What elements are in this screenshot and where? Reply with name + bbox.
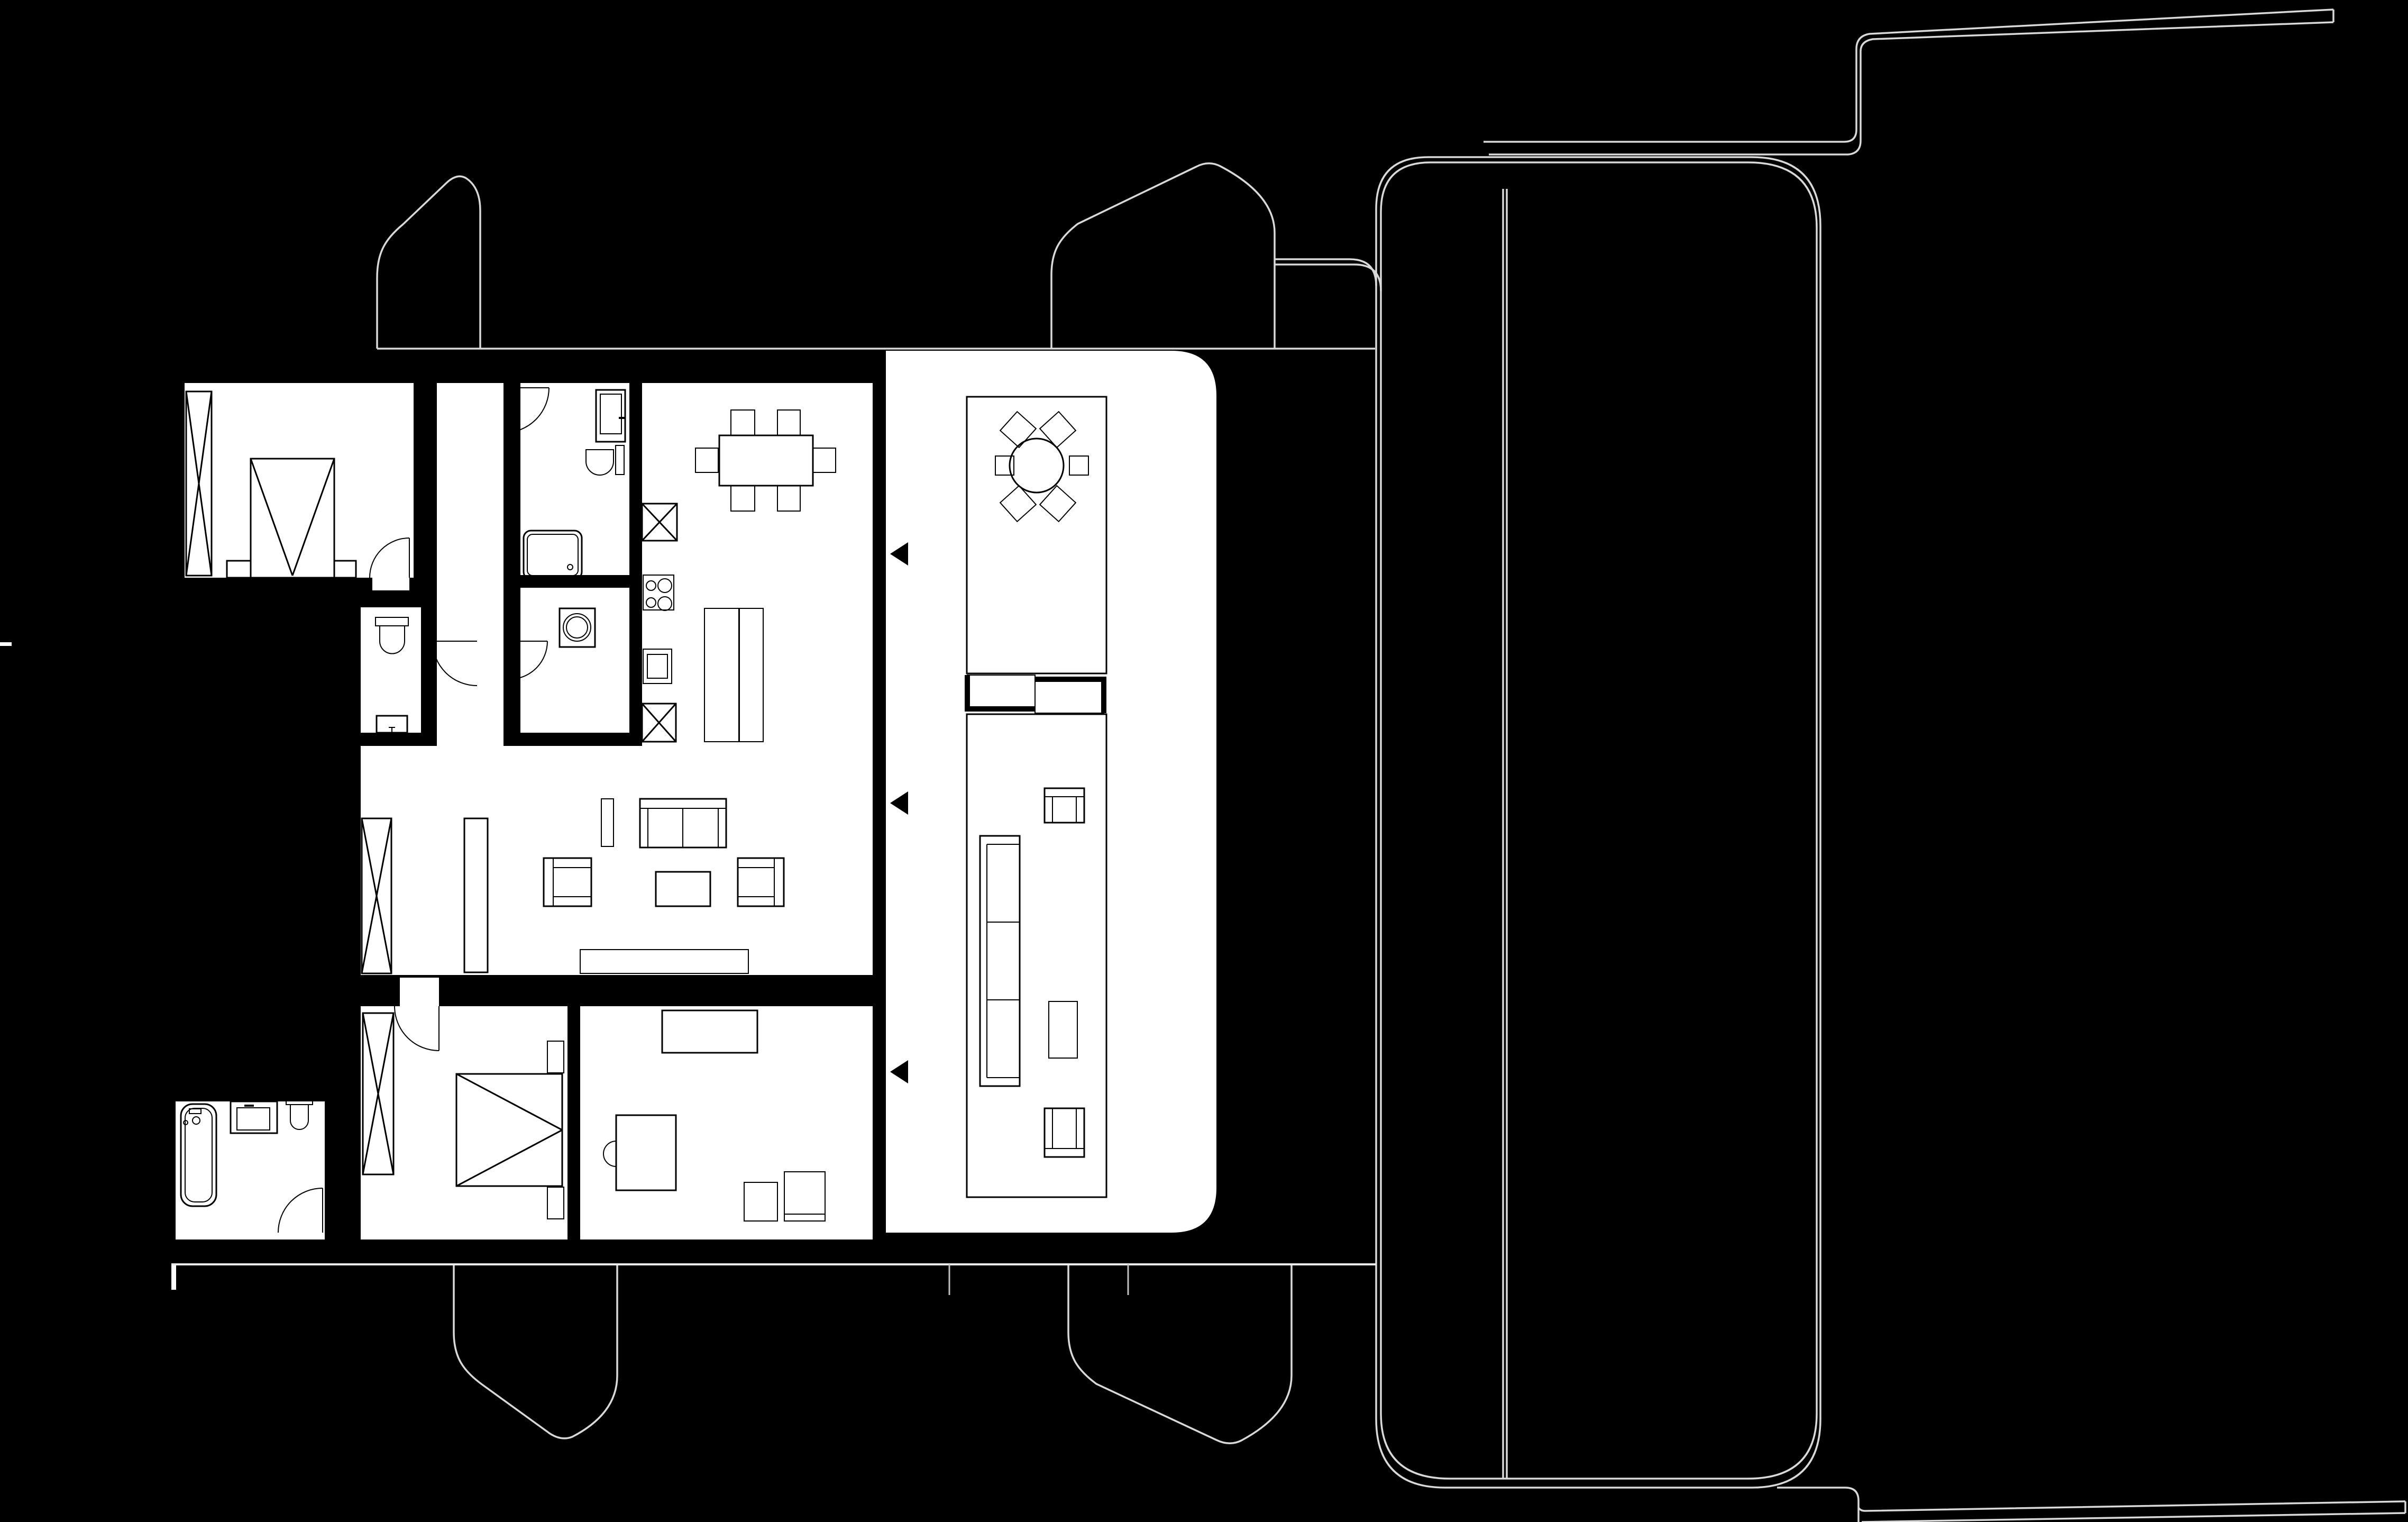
room-utility bbox=[520, 588, 629, 733]
path-bottom-right-2 bbox=[1862, 1513, 2405, 1522]
plate-east-outer bbox=[1376, 157, 1820, 1488]
floor-plan-drawing bbox=[0, 0, 2408, 1522]
floor-plan-canvas bbox=[0, 0, 2408, 1522]
plate-east-inner bbox=[1381, 162, 1817, 1479]
terrace-slab bbox=[886, 351, 1216, 1233]
plate-mid-branch-outer bbox=[1275, 259, 1376, 286]
room-living bbox=[361, 746, 873, 975]
path-top-inner bbox=[1489, 22, 2333, 154]
room-bedroom-1 bbox=[185, 383, 414, 578]
path-top-outer bbox=[1484, 10, 2333, 142]
plate-bottom-bump-2 bbox=[1068, 1264, 1292, 1443]
room-study bbox=[580, 1006, 873, 1240]
path-bottom-outer bbox=[1777, 1488, 1858, 1522]
room-bath-2 bbox=[176, 1101, 325, 1240]
door-gap-bedroom2 bbox=[400, 978, 439, 1006]
left-edge-tick bbox=[0, 642, 12, 646]
wall-stub-bottom-left bbox=[171, 1264, 176, 1290]
plate-mid-branch-inner bbox=[1275, 265, 1381, 291]
plate-bump-2 bbox=[1051, 163, 1275, 349]
room-bath-1 bbox=[520, 383, 629, 575]
room-hall bbox=[437, 383, 503, 749]
door-gap-bedroom1 bbox=[372, 578, 409, 590]
path-bottom-right-1 bbox=[1858, 1501, 2405, 1511]
plate-bump-1 bbox=[377, 176, 480, 349]
room-bedroom-2 bbox=[361, 1006, 567, 1240]
plate-bottom-bump-1 bbox=[454, 1264, 617, 1438]
